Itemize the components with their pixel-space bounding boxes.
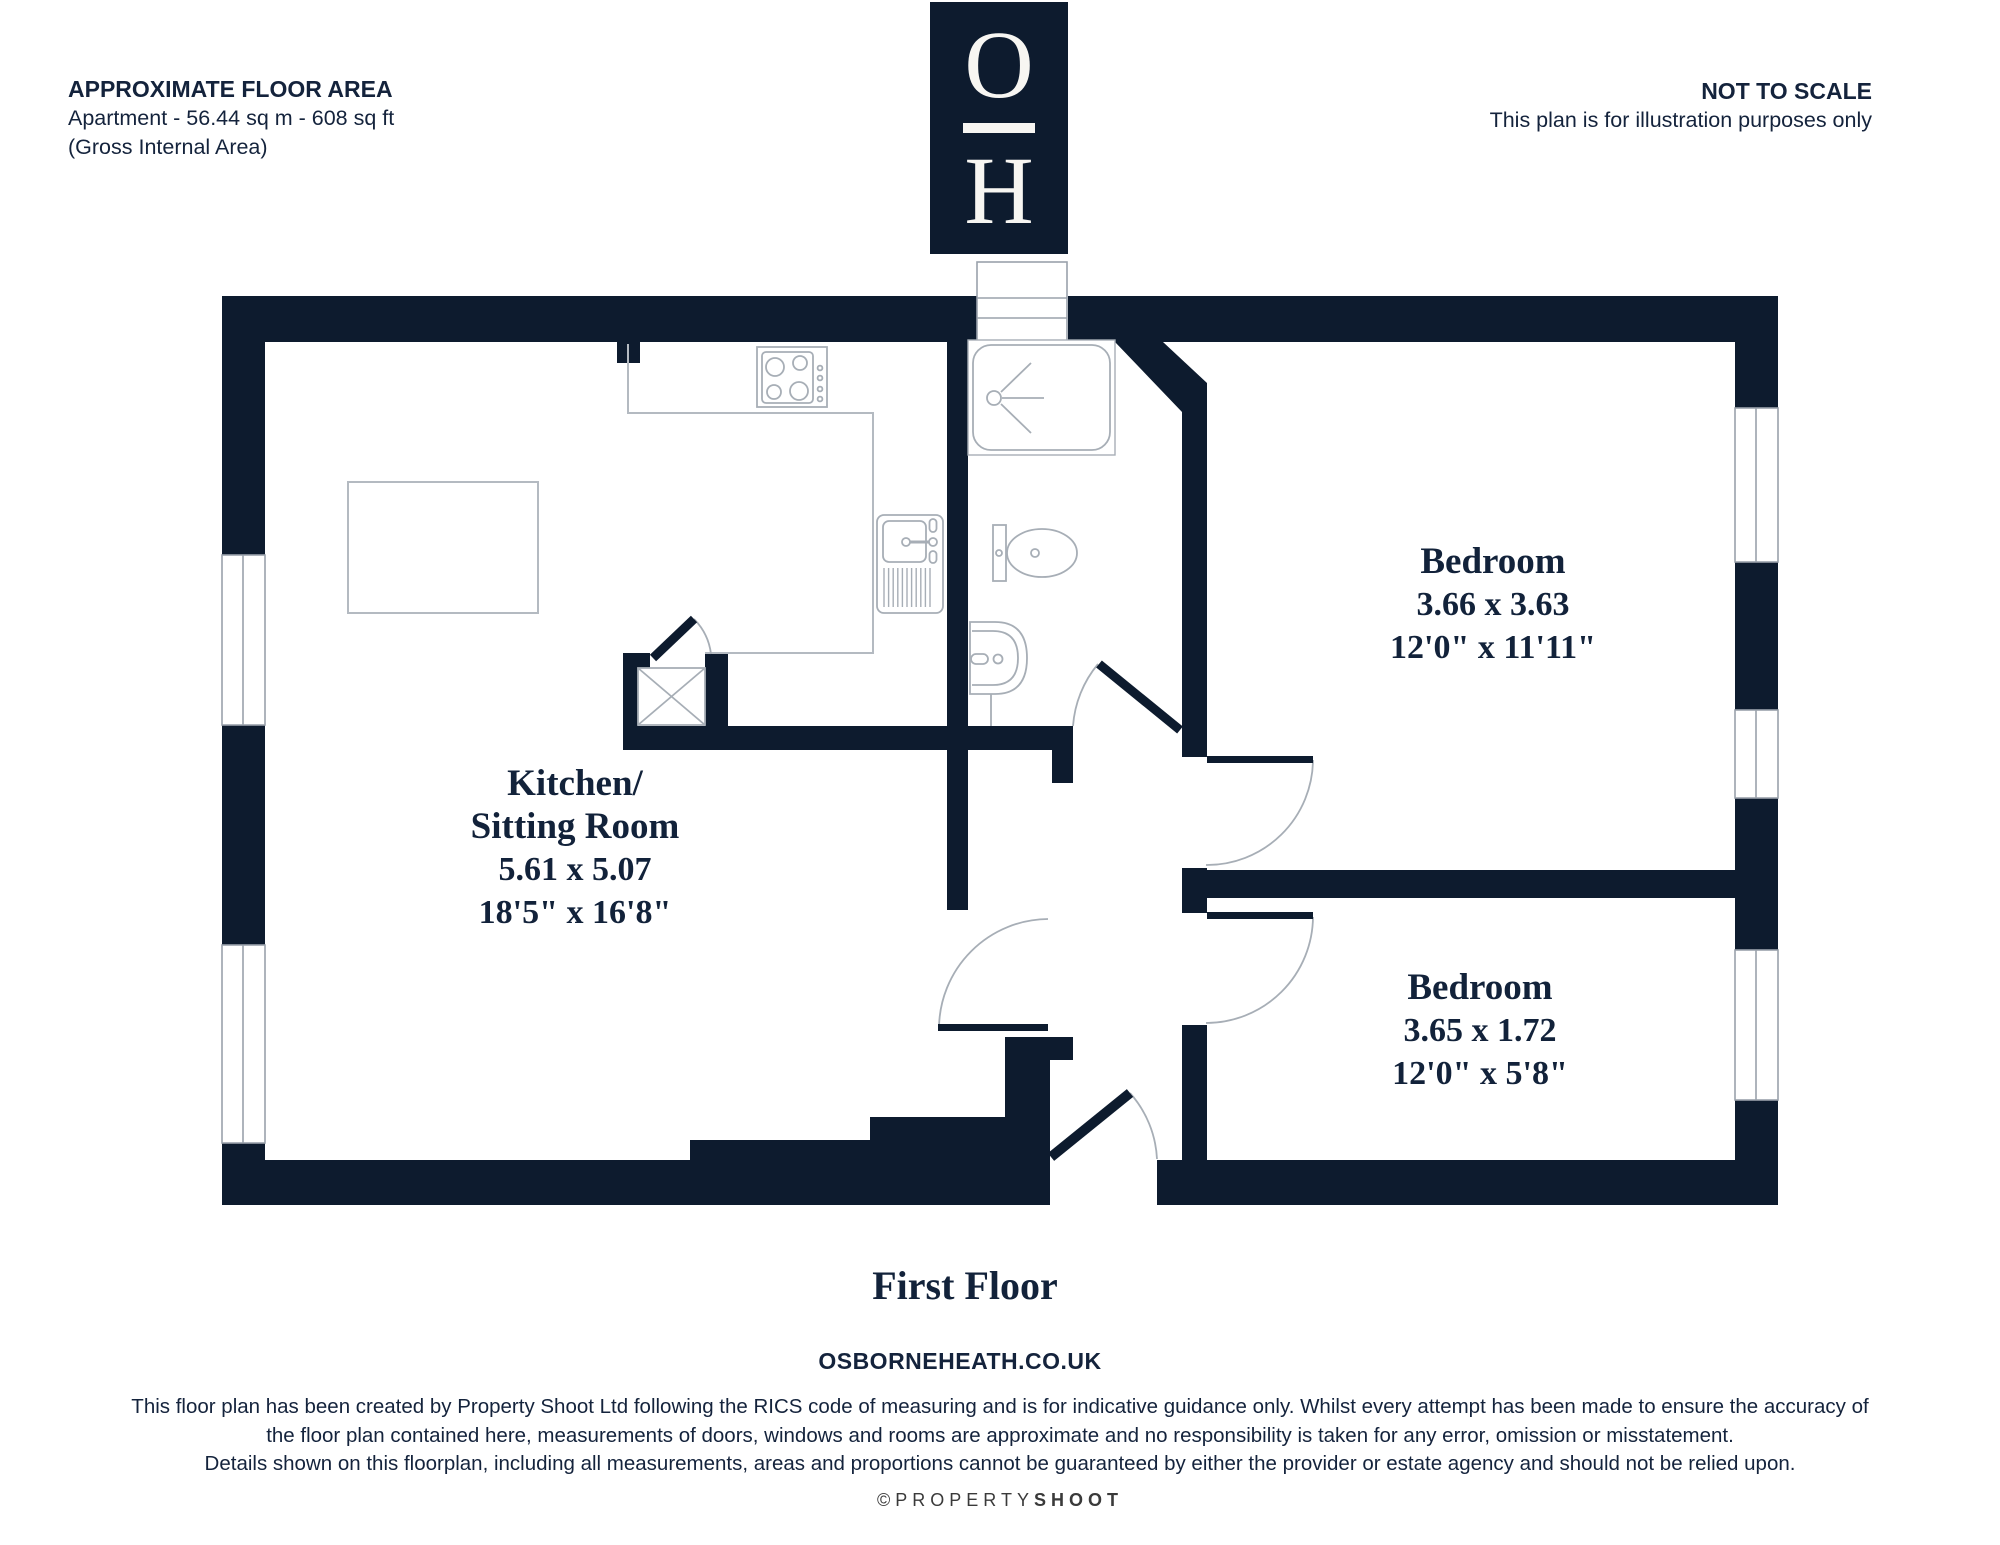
bathroom-angled-wall <box>1115 342 1207 757</box>
room-dims-imperial: 18'5" x 16'8" <box>375 891 775 934</box>
floor-title: First Floor <box>872 1262 1058 1309</box>
bathroom-door-arc <box>1073 664 1098 726</box>
bathroom-door-leaf <box>1099 664 1180 730</box>
cupboard-door-arc <box>694 619 711 654</box>
entrance-door-leaf <box>1051 1093 1130 1157</box>
storage-cupboard-icon <box>638 668 705 725</box>
room-name: Bedroom <box>1293 540 1693 583</box>
bedroom1-label: Bedroom 3.66 x 3.63 12'0" x 11'11" <box>1293 540 1693 669</box>
disclaimer-line1: This floor plan has been created by Prop… <box>0 1393 2000 1422</box>
room-dims-metric: 5.61 x 5.07 <box>375 848 775 891</box>
shower-icon <box>968 340 1115 455</box>
bedroom2-label: Bedroom 3.65 x 1.72 12'0" x 5'8" <box>1280 966 1680 1095</box>
entrance-steps <box>977 262 1067 342</box>
room-name-line1: Kitchen/ <box>375 762 775 805</box>
floorplan-page: APPROXIMATE FLOOR AREA Apartment - 56.44… <box>0 0 2000 1545</box>
room-dims-imperial: 12'0" x 11'11" <box>1293 626 1693 669</box>
bedroom1-door-leaf <box>1207 756 1313 763</box>
disclaimer-line3: Details shown on this floorplan, includi… <box>0 1450 2000 1479</box>
kitchen-door-leaf <box>938 1024 1048 1031</box>
sofa-outline <box>348 482 538 613</box>
sink-icon <box>877 515 943 613</box>
toilet-icon <box>993 525 1077 581</box>
basin-icon <box>970 622 1027 726</box>
provider-credit: ©PROPERTYSHOOT <box>877 1490 1123 1511</box>
room-name-line2: Sitting Room <box>375 805 775 848</box>
room-dims-imperial: 12'0" x 5'8" <box>1280 1052 1680 1095</box>
window-right-2 <box>1735 710 1778 798</box>
room-name: Bedroom <box>1280 966 1680 1009</box>
hob-icon <box>757 347 827 407</box>
kitchen-sitting-room-label: Kitchen/ Sitting Room 5.61 x 5.07 18'5" … <box>375 762 775 934</box>
agency-website: OSBORNEHEATH.CO.UK <box>818 1348 1101 1375</box>
disclaimer: This floor plan has been created by Prop… <box>0 1393 2000 1479</box>
bedroom2-door-leaf <box>1207 912 1313 919</box>
bedroom-divider-wall <box>1207 870 1735 898</box>
window-left-1 <box>222 555 265 725</box>
window-right-3 <box>1735 950 1778 1100</box>
floor-plan-drawing <box>0 0 2000 1545</box>
bedroom1-door-arc <box>1206 760 1313 865</box>
room-dims-metric: 3.66 x 3.63 <box>1293 583 1693 626</box>
provider-credit-light: ©PROPERTY <box>877 1490 1034 1510</box>
provider-credit-bold: SHOOT <box>1034 1490 1123 1510</box>
cupboard-door-leaf <box>653 619 694 658</box>
entrance-door-arc <box>1130 1093 1157 1159</box>
room-dims-metric: 3.65 x 1.72 <box>1280 1009 1680 1052</box>
window-left-2 <box>222 945 265 1143</box>
disclaimer-line2: the floor plan contained here, measureme… <box>0 1422 2000 1451</box>
kitchen-counter-outline <box>628 344 873 653</box>
window-right-1 <box>1735 408 1778 562</box>
kitchen-door-arc <box>939 919 1048 1028</box>
